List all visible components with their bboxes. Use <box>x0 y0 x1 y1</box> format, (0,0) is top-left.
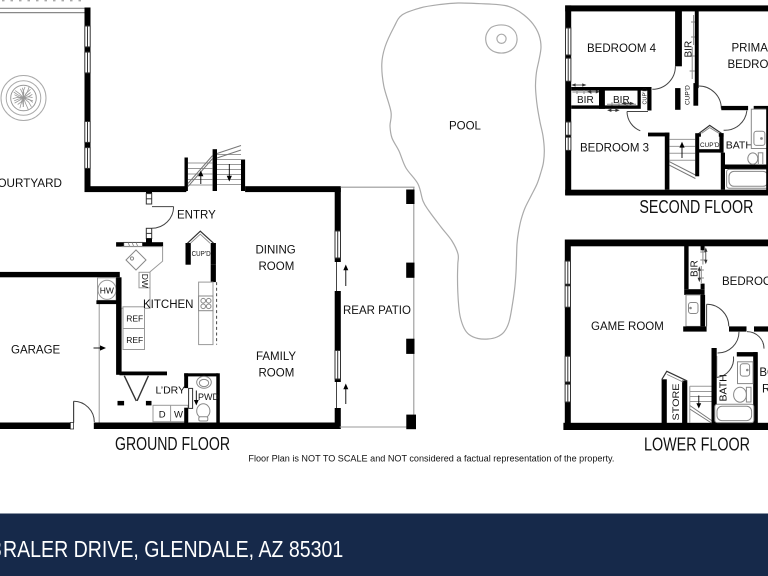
svg-text:W: W <box>174 410 183 421</box>
svg-text:ROOM: ROOM <box>762 384 768 396</box>
svg-text:PWD: PWD <box>198 392 219 402</box>
svg-text:CUP’D: CUP’D <box>685 85 692 105</box>
svg-text:D: D <box>159 410 166 421</box>
svg-text:3: 3 <box>0 535 2 562</box>
svg-text:BIR: BIR <box>577 95 594 106</box>
svg-text:STORE: STORE <box>671 384 682 421</box>
svg-text:SECOND FLOOR: SECOND FLOOR <box>639 197 753 217</box>
svg-text:RALER DRIVE, GLENDALE, AZ 8530: RALER DRIVE, GLENDALE, AZ 85301 <box>3 535 343 562</box>
svg-text:LOWER FLOOR: LOWER FLOOR <box>644 435 750 455</box>
svg-text:L’DRY: L’DRY <box>156 385 186 397</box>
svg-text:HW: HW <box>100 286 114 296</box>
svg-text:BEDROOM 3: BEDROOM 3 <box>580 143 649 155</box>
svg-text:GROUND FLOOR: GROUND FLOOR <box>115 433 230 454</box>
svg-text:ENTRY: ENTRY <box>177 210 216 222</box>
svg-text:BEDROOM: BEDROOM <box>728 59 768 71</box>
svg-text:REF: REF <box>126 314 143 324</box>
svg-text:BEDROOM: BEDROOM <box>722 276 768 288</box>
svg-text:PRIMARY: PRIMARY <box>732 43 768 55</box>
svg-text:KITCHEN: KITCHEN <box>143 299 193 311</box>
svg-text:DW: DW <box>140 274 150 288</box>
svg-text:FAMILY: FAMILY <box>256 351 296 363</box>
svg-text:COURTYARD: COURTYARD <box>0 176 62 190</box>
svg-text:BONUS: BONUS <box>759 367 768 379</box>
svg-text:BIR: BIR <box>684 41 695 58</box>
svg-text:DINING: DINING <box>256 245 296 257</box>
svg-text:ROOM: ROOM <box>259 261 295 273</box>
svg-text:BEDROOM 4: BEDROOM 4 <box>587 43 657 55</box>
svg-text:REAR PATIO: REAR PATIO <box>343 305 411 317</box>
svg-text:BATH: BATH <box>718 374 730 401</box>
svg-text:CUP’D: CUP’D <box>700 142 720 149</box>
svg-text:Floor Plan is NOT TO SCALE and: Floor Plan is NOT TO SCALE and NOT consi… <box>248 454 614 464</box>
svg-text:BATH: BATH <box>726 140 753 152</box>
svg-text:REF: REF <box>126 335 143 345</box>
svg-text:POOL: POOL <box>449 121 482 133</box>
svg-text:CUP’D: CUP’D <box>192 251 211 258</box>
svg-text:GAME ROOM: GAME ROOM <box>591 321 664 333</box>
svg-text:GARAGE: GARAGE <box>11 345 61 357</box>
svg-text:ROOM: ROOM <box>259 368 295 380</box>
